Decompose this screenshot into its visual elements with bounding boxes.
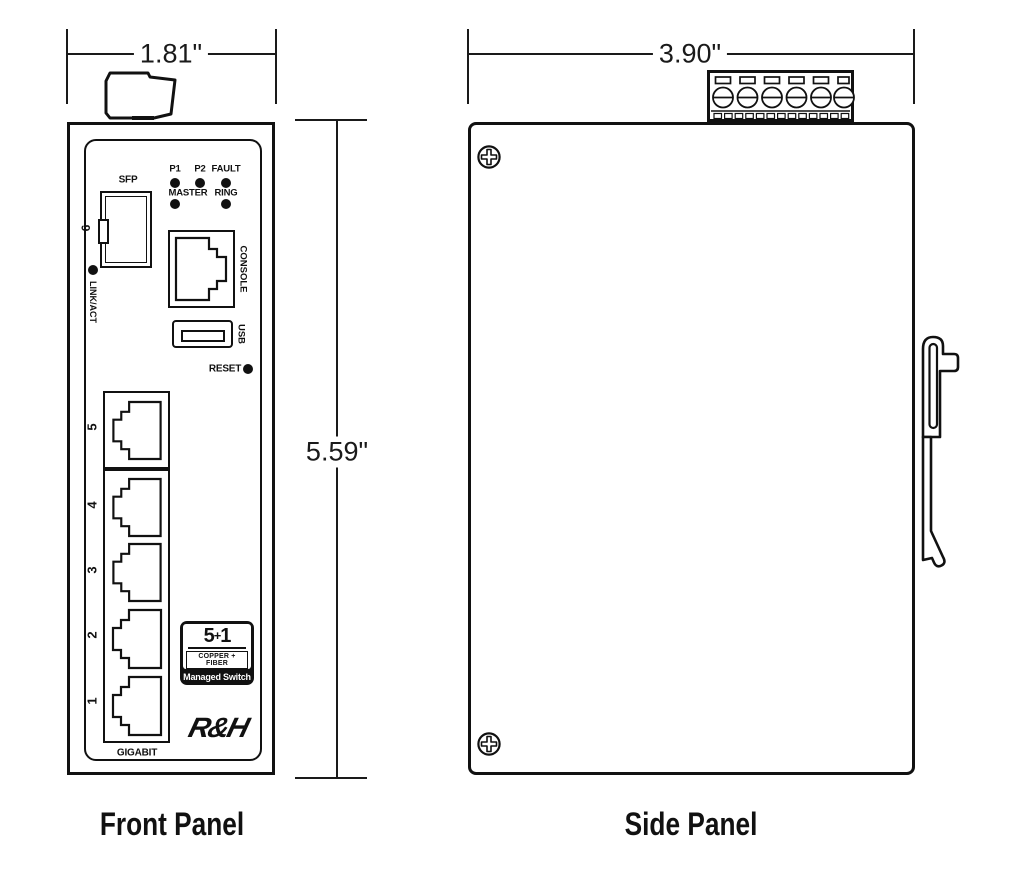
extension-line bbox=[66, 29, 68, 104]
link-act-led bbox=[88, 265, 98, 275]
front-panel-caption: Front Panel bbox=[100, 806, 244, 843]
gigabit-label: GIGABIT bbox=[117, 748, 157, 759]
port-number-5: 5 bbox=[85, 423, 100, 430]
dimension-tick bbox=[295, 119, 367, 121]
usb-label: USB bbox=[236, 324, 247, 344]
led-label-p1: P1 bbox=[169, 164, 180, 175]
rj45-jack-1 bbox=[112, 675, 162, 737]
front-width-dimension: 1.81" bbox=[134, 39, 208, 70]
port-number-4: 4 bbox=[85, 501, 100, 508]
reset-label: RESET bbox=[209, 364, 241, 375]
brand-logo: R&H bbox=[185, 712, 250, 744]
dimension-tick bbox=[295, 777, 367, 779]
side-panel-body bbox=[468, 122, 915, 775]
port-number-1: 1 bbox=[85, 697, 100, 704]
side-width-dimension: 3.90" bbox=[653, 39, 727, 70]
usb-slot bbox=[181, 330, 225, 342]
led-p1 bbox=[170, 178, 180, 188]
screw-top-left-icon bbox=[477, 145, 501, 169]
rj45-jack-2 bbox=[112, 609, 162, 669]
dimension-diagram: 1.81" 5.59" P1 P2 FAULT MASTER RING SFP … bbox=[0, 0, 1024, 881]
port-number-2: 2 bbox=[85, 631, 100, 638]
front-height-dimension: 5.59" bbox=[300, 437, 374, 468]
rj45-jack-4 bbox=[112, 478, 162, 537]
extension-line bbox=[467, 29, 469, 104]
badge-media-label: COPPER + FIBER bbox=[186, 651, 248, 669]
rj45-jack-3 bbox=[112, 543, 162, 602]
rj45-jack-5 bbox=[112, 401, 162, 460]
port-number-6: 6 bbox=[79, 225, 93, 232]
badge-type-label: Managed Switch bbox=[183, 671, 251, 685]
led-fault bbox=[221, 178, 231, 188]
extension-line bbox=[913, 29, 915, 104]
terminal-block bbox=[707, 70, 854, 122]
led-label-fault: FAULT bbox=[212, 164, 241, 175]
led-master bbox=[170, 199, 180, 209]
led-p2 bbox=[195, 178, 205, 188]
led-label-p2: P2 bbox=[194, 164, 205, 175]
din-rail-clip bbox=[913, 333, 963, 581]
port-number-3: 3 bbox=[85, 566, 100, 573]
power-plug-outline bbox=[98, 68, 180, 122]
extension-line bbox=[275, 29, 277, 104]
sfp-latch bbox=[98, 219, 109, 244]
led-label-ring: RING bbox=[215, 188, 238, 199]
side-panel-caption: Side Panel bbox=[625, 806, 758, 843]
reset-button bbox=[243, 364, 253, 374]
sfp-label: SFP bbox=[119, 175, 138, 186]
console-label: CONSOLE bbox=[238, 246, 249, 293]
product-badge: 5+1 COPPER + FIBER Managed Switch bbox=[180, 621, 254, 685]
led-ring bbox=[221, 199, 231, 209]
sfp-cage-inner bbox=[105, 196, 147, 263]
screw-bottom-left-icon bbox=[477, 732, 501, 756]
console-rj45-jack bbox=[175, 237, 227, 301]
link-act-label: LINK/ACT bbox=[88, 281, 98, 323]
led-label-master: MASTER bbox=[169, 188, 208, 199]
badge-port-count: 5+1 bbox=[188, 625, 246, 649]
